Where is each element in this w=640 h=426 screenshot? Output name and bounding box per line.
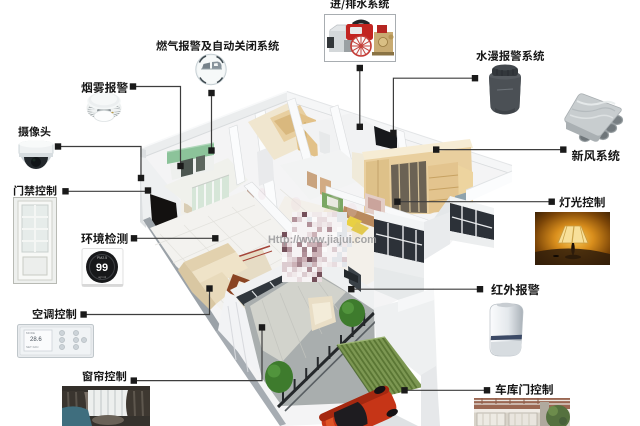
svg-text:Http://www.jiajui.com: Http://www.jiajui.com [268,234,377,246]
svg-text:MODE: MODE [26,331,35,335]
svg-text:99: 99 [96,262,108,274]
svg-text:SET FAN: SET FAN [26,345,38,349]
svg-text:28.6: 28.6 [30,337,42,343]
svg-text:ug/m3: ug/m3 [98,275,107,279]
svg-text:PM2.5: PM2.5 [97,256,107,260]
